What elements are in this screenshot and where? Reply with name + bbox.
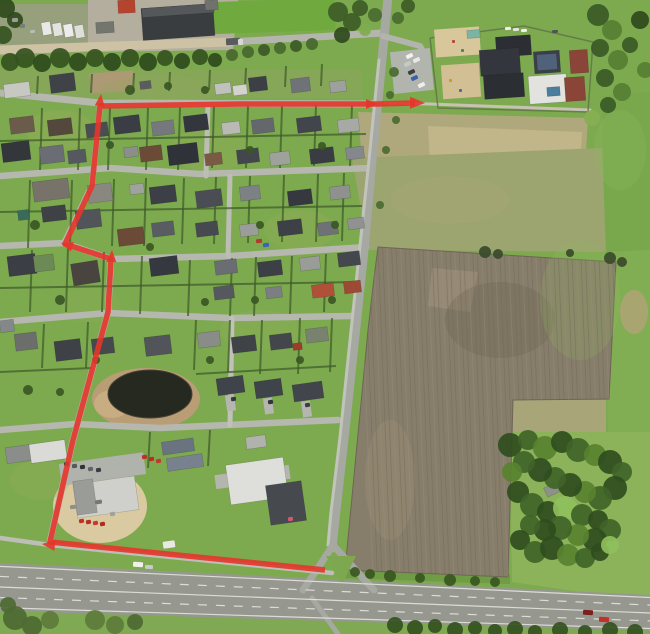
tree xyxy=(428,619,442,633)
tree xyxy=(608,50,628,70)
building xyxy=(305,327,329,344)
building xyxy=(151,120,175,137)
tree xyxy=(384,570,396,582)
vehicle xyxy=(80,465,86,470)
pasture-top xyxy=(212,0,335,34)
vehicle xyxy=(156,459,162,464)
vehicle xyxy=(88,467,94,472)
vehicle xyxy=(505,27,511,31)
tree xyxy=(206,356,214,364)
building xyxy=(49,73,76,94)
grass-tint xyxy=(390,176,510,224)
vehicle xyxy=(70,505,76,510)
tree xyxy=(86,49,104,67)
building xyxy=(14,332,38,352)
building xyxy=(96,21,115,33)
tree xyxy=(392,12,404,24)
building xyxy=(547,87,561,97)
vehicle xyxy=(583,610,593,616)
building xyxy=(9,116,35,135)
pond-water xyxy=(108,370,192,418)
tree xyxy=(226,49,238,61)
tree xyxy=(103,53,121,71)
building xyxy=(74,24,85,38)
vehicle xyxy=(256,239,262,244)
building xyxy=(1,140,31,162)
tree xyxy=(242,46,254,58)
tree xyxy=(157,50,173,66)
building xyxy=(251,118,275,135)
vehicle xyxy=(552,30,558,34)
tree xyxy=(382,146,390,154)
building xyxy=(296,116,322,134)
tree xyxy=(490,577,500,587)
vehicle xyxy=(72,464,78,469)
vehicle xyxy=(305,403,311,408)
building xyxy=(39,145,65,165)
tree xyxy=(85,610,105,630)
building xyxy=(149,255,179,276)
aerial-satellite-map[interactable] xyxy=(0,0,650,634)
building xyxy=(254,378,283,399)
tree xyxy=(33,54,51,72)
building xyxy=(52,22,63,36)
building xyxy=(129,183,144,195)
building xyxy=(47,118,73,137)
tree xyxy=(444,574,456,586)
tree xyxy=(566,249,574,257)
grass-tint xyxy=(594,110,646,190)
tree xyxy=(55,295,65,305)
vehicle xyxy=(86,520,92,525)
tree xyxy=(613,83,631,101)
tan-patch-east xyxy=(620,290,648,334)
tree xyxy=(296,356,304,364)
tree xyxy=(146,243,154,251)
building xyxy=(113,114,141,134)
building xyxy=(269,333,293,351)
building xyxy=(245,435,266,450)
vehicle xyxy=(100,522,106,527)
tree xyxy=(23,385,33,395)
building xyxy=(117,226,145,246)
tree xyxy=(164,82,172,90)
vertical-lane-2 xyxy=(228,176,230,256)
building xyxy=(195,188,223,208)
aerial-map-viewport[interactable] xyxy=(0,0,650,634)
vehicle xyxy=(110,512,116,517)
vehicle xyxy=(521,29,527,33)
tree xyxy=(15,48,35,68)
vehicle xyxy=(599,617,609,623)
building xyxy=(41,21,52,35)
tree xyxy=(30,220,40,230)
vehicle xyxy=(79,519,85,524)
building xyxy=(3,81,31,98)
building xyxy=(248,76,268,92)
building xyxy=(337,251,361,268)
building xyxy=(343,280,361,294)
tree xyxy=(318,142,326,150)
tree xyxy=(502,462,522,482)
tree xyxy=(201,86,209,94)
vehicle xyxy=(149,457,155,462)
building xyxy=(290,77,311,93)
building xyxy=(205,0,219,10)
vehicle xyxy=(268,400,274,405)
building xyxy=(54,338,82,361)
tree xyxy=(334,27,350,43)
vehicle xyxy=(12,18,18,23)
tree xyxy=(584,110,600,126)
building xyxy=(536,53,557,70)
tree xyxy=(368,8,382,22)
building xyxy=(118,0,136,13)
tree xyxy=(596,69,614,87)
building xyxy=(337,118,359,133)
tree xyxy=(41,611,59,629)
building xyxy=(467,30,481,39)
building xyxy=(213,285,234,300)
building xyxy=(216,375,245,396)
building xyxy=(269,151,290,166)
building xyxy=(231,335,257,354)
building xyxy=(265,481,306,526)
vehicle xyxy=(231,397,237,402)
tree xyxy=(201,298,209,306)
tree xyxy=(192,49,208,65)
tree xyxy=(387,617,403,633)
tree xyxy=(127,614,143,630)
building xyxy=(277,219,303,237)
tree xyxy=(256,221,264,229)
building xyxy=(63,23,74,37)
tree xyxy=(306,38,318,50)
tree xyxy=(56,388,64,396)
tree xyxy=(50,48,70,68)
vehicle xyxy=(449,79,452,82)
building xyxy=(239,185,261,201)
building xyxy=(123,146,138,158)
building xyxy=(140,80,152,89)
building xyxy=(479,48,521,77)
building xyxy=(257,260,283,278)
tree xyxy=(258,44,270,56)
tree xyxy=(125,85,135,95)
tree xyxy=(604,252,616,264)
building xyxy=(232,84,247,96)
vehicle xyxy=(93,521,99,526)
tree xyxy=(479,246,491,258)
tree xyxy=(359,24,371,36)
tree xyxy=(106,141,114,149)
building xyxy=(569,49,589,73)
hedge-line xyxy=(321,64,322,86)
building xyxy=(41,205,67,223)
building xyxy=(33,254,55,272)
tree xyxy=(246,146,254,154)
vehicle xyxy=(459,89,462,92)
building xyxy=(214,82,231,95)
vehicle xyxy=(461,49,464,52)
building xyxy=(195,221,219,238)
building xyxy=(265,286,282,299)
building xyxy=(329,80,346,93)
tree xyxy=(365,569,375,579)
vehicle xyxy=(263,243,269,248)
vehicle xyxy=(142,455,148,460)
vehicle xyxy=(133,562,143,568)
building xyxy=(70,260,100,286)
tree xyxy=(376,201,384,209)
tree xyxy=(350,567,360,577)
vehicle xyxy=(96,468,102,473)
tree xyxy=(602,20,622,40)
hedge-line xyxy=(209,70,210,90)
tree xyxy=(591,39,609,57)
building xyxy=(311,283,334,299)
tree xyxy=(251,296,259,304)
tree xyxy=(106,616,124,634)
tree xyxy=(493,249,503,259)
tree xyxy=(0,597,16,613)
building xyxy=(204,152,222,166)
tree xyxy=(328,296,336,304)
tree xyxy=(208,53,222,67)
tree xyxy=(121,49,139,67)
vehicle xyxy=(30,30,35,33)
vehicle xyxy=(513,28,519,32)
hedge-line xyxy=(285,66,286,87)
building xyxy=(221,121,240,135)
building xyxy=(293,342,303,350)
tree xyxy=(601,536,619,554)
tree xyxy=(622,37,638,53)
building xyxy=(239,223,258,237)
tree xyxy=(352,0,368,16)
tree xyxy=(139,53,157,71)
building xyxy=(564,76,586,101)
building xyxy=(5,444,33,463)
vehicle xyxy=(20,24,25,28)
tree xyxy=(389,67,399,77)
vehicle xyxy=(145,565,153,569)
tree xyxy=(415,573,425,583)
building xyxy=(151,221,175,238)
hedge-line xyxy=(91,74,92,93)
tree xyxy=(631,11,649,29)
tree xyxy=(274,42,286,54)
tree xyxy=(470,576,480,586)
vehicle xyxy=(288,517,294,522)
vehicle xyxy=(238,39,243,45)
building xyxy=(347,217,364,230)
building xyxy=(483,73,525,100)
building xyxy=(144,334,172,356)
building xyxy=(287,189,313,207)
hedge-line xyxy=(37,76,38,94)
pavement-pad xyxy=(441,63,481,100)
building xyxy=(32,178,70,202)
vehicle xyxy=(452,40,455,43)
tree xyxy=(331,221,339,229)
building xyxy=(67,149,86,164)
tree xyxy=(386,91,394,99)
building xyxy=(345,146,364,160)
tree xyxy=(174,53,190,69)
building xyxy=(17,209,29,220)
tree xyxy=(69,53,87,71)
tree xyxy=(600,97,616,113)
building xyxy=(139,145,163,163)
building xyxy=(149,184,177,204)
building xyxy=(197,331,221,349)
building xyxy=(299,256,320,271)
building xyxy=(183,114,209,133)
building xyxy=(329,185,350,200)
tree xyxy=(617,257,627,267)
building xyxy=(167,142,199,166)
building xyxy=(7,253,37,276)
tree xyxy=(290,40,302,52)
tree xyxy=(392,116,400,124)
building xyxy=(0,319,15,333)
building xyxy=(214,259,238,276)
